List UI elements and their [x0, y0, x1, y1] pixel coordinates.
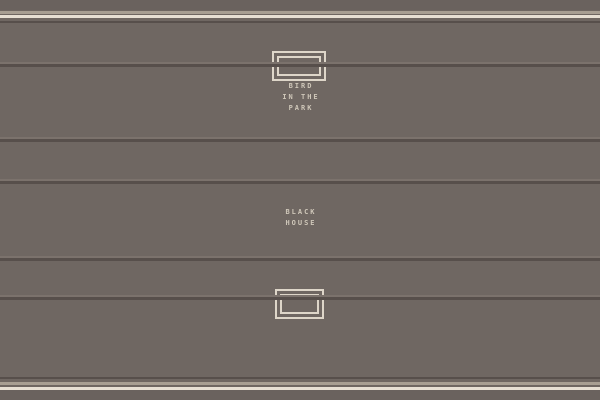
title-line: IN THE	[0, 92, 600, 103]
title-line: HOUSE	[0, 218, 600, 229]
bottom-edge-strip	[0, 390, 600, 400]
door-panel[interactable]	[0, 300, 600, 377]
bottom-beige-trim-line	[0, 382, 600, 385]
drawer-panel-1[interactable]	[0, 23, 600, 62]
panel-title-bird-in-the-park: BIRD IN THE PARK	[0, 81, 600, 114]
title-line: PARK	[0, 103, 600, 114]
title-line: BLACK	[0, 207, 600, 218]
cabinet-facade: BIRD IN THE PARK BLACK HOUSE	[0, 0, 600, 400]
title-line: BIRD	[0, 81, 600, 92]
top-beige-trim-line	[0, 11, 600, 14]
top-cream-trim-line	[0, 15, 600, 18]
drawer-panel-3[interactable]	[0, 261, 600, 295]
top-edge-strip	[0, 0, 600, 10]
panel-title-black-house: BLACK HOUSE	[0, 207, 600, 229]
bottom-shadow-line	[0, 377, 600, 379]
drawer-panel-2[interactable]	[0, 142, 600, 179]
